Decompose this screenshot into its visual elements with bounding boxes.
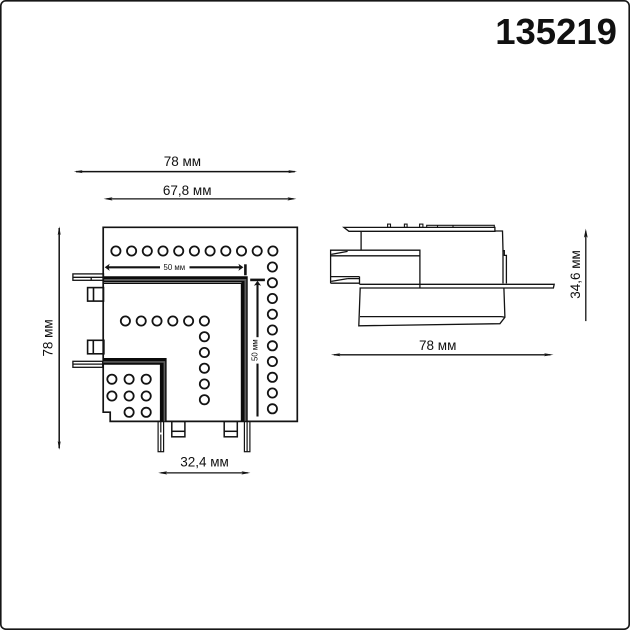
svg-text:32,4 мм: 32,4 мм: [180, 455, 229, 470]
svg-text:78 мм: 78 мм: [164, 154, 201, 169]
svg-text:78 мм: 78 мм: [419, 338, 456, 353]
svg-text:135219: 135219: [495, 11, 617, 52]
svg-text:78 мм: 78 мм: [41, 319, 56, 356]
svg-text:50 мм: 50 мм: [251, 339, 260, 361]
svg-text:67,8 мм: 67,8 мм: [163, 183, 212, 198]
svg-text:34,6 мм: 34,6 мм: [568, 250, 583, 299]
svg-text:50 мм: 50 мм: [164, 263, 186, 272]
